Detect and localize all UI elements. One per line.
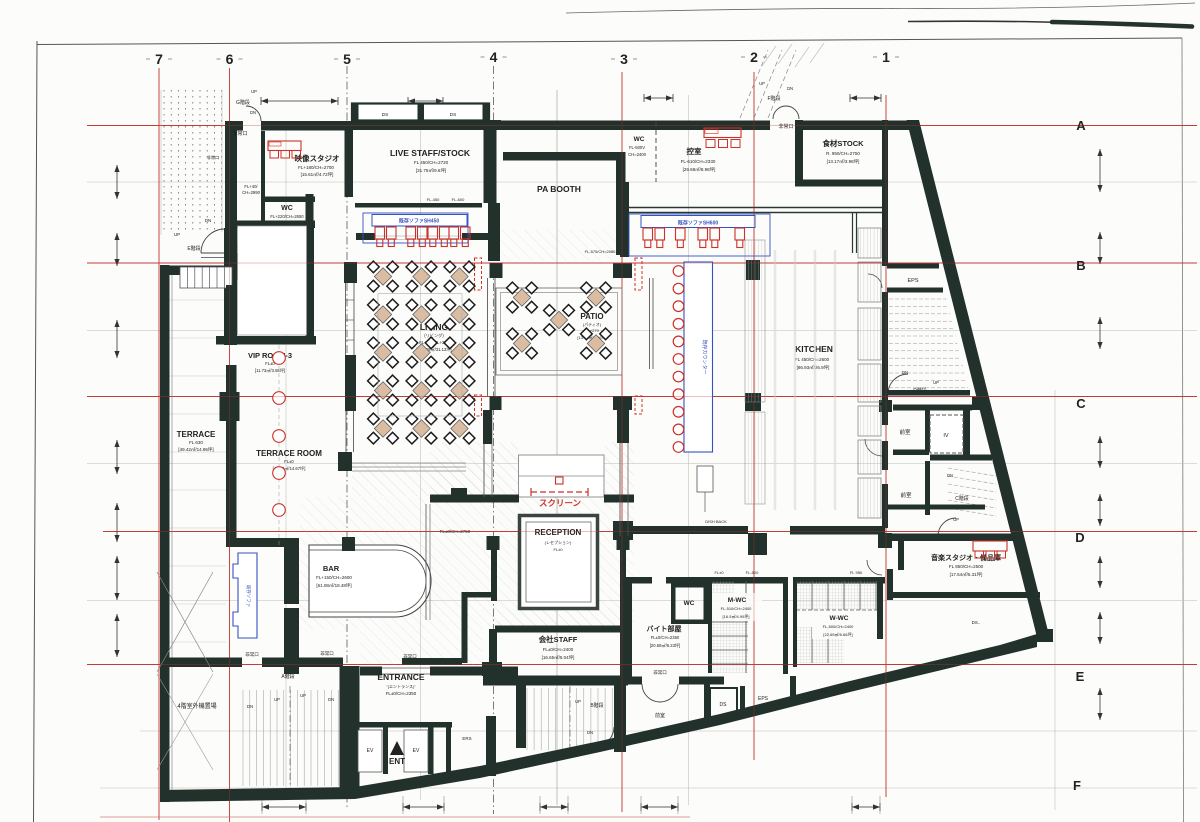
svg-text:RECEPTION: RECEPTION: [535, 528, 582, 537]
svg-text:B: B: [1076, 258, 1085, 273]
svg-text:C階段: C階段: [955, 495, 969, 502]
svg-text:[31.75㎡/9.6坪]: [31.75㎡/9.6坪]: [416, 167, 446, 174]
svg-text:PA BOOTH: PA BOOTH: [537, 184, 581, 194]
svg-text:ENT: ENT: [389, 757, 405, 766]
svg-text:D: D: [1075, 530, 1084, 545]
svg-text:既存ソファSH600: 既存ソファSH600: [678, 220, 719, 227]
svg-text:"(エントランス)": "(エントランス)": [386, 683, 416, 689]
svg-text:[11.73㎡/3.55坪]: [11.73㎡/3.55坪]: [255, 367, 285, 374]
svg-text:FL-610/CH=2330: FL-610/CH=2330: [681, 159, 716, 164]
svg-text:EPS: EPS: [758, 696, 769, 702]
svg-text:5: 5: [343, 51, 351, 67]
svg-text:映像スタジオ: 映像スタジオ: [295, 153, 340, 163]
svg-text:DN: DN: [247, 704, 253, 709]
svg-text:FL 450/CH=2600: FL 450/CH=2600: [795, 357, 830, 362]
svg-text:(パティオ): (パティオ): [583, 321, 602, 327]
svg-text:W-WC: W-WC: [830, 615, 849, 622]
svg-text:E階段: E階段: [187, 245, 200, 252]
svg-text:FL-570/CH=2080: FL-570/CH=2080: [585, 249, 617, 254]
svg-text:R. 950/CH=2750: R. 950/CH=2750: [826, 151, 860, 156]
svg-text:EPS: EPS: [907, 278, 918, 284]
svg-text:2: 2: [750, 49, 758, 65]
svg-text:(レセプション): (レセプション): [545, 539, 572, 545]
svg-text:WC: WC: [281, 205, 293, 212]
svg-text:[86.93㎡/26.9坪]: [86.93㎡/26.9坪]: [797, 364, 830, 371]
svg-text:DN: DN: [328, 697, 334, 702]
svg-text:DN: DN: [947, 473, 953, 478]
svg-text:6: 6: [226, 51, 234, 67]
svg-text:F: F: [1073, 778, 1081, 793]
svg-text:BAR: BAR: [323, 564, 340, 573]
svg-text:DISH BACK: DISH BACK: [705, 519, 727, 524]
svg-text:FL+40/: FL+40/: [244, 184, 258, 189]
svg-text:FL-500: FL-500: [746, 570, 759, 575]
svg-text:WC: WC: [684, 600, 695, 607]
svg-text:UP: UP: [300, 693, 306, 698]
svg-text:3: 3: [620, 51, 628, 67]
svg-text:CH=2990: CH=2990: [242, 190, 260, 195]
svg-text:DS: DS: [720, 702, 728, 708]
svg-text:[20.58㎡/6.23坪]: [20.58㎡/6.23坪]: [650, 642, 681, 649]
svg-text:ERS: ERS: [462, 736, 471, 741]
svg-text:FL-510/CH=2400: FL-510/CH=2400: [721, 606, 753, 611]
svg-text:TERRACE: TERRACE: [177, 430, 216, 439]
svg-text:前室: 前室: [899, 428, 911, 436]
svg-text:FL-600: FL-600: [452, 197, 465, 202]
svg-text:FL±0/CH=2350: FL±0/CH=2350: [651, 635, 680, 640]
svg-text:[22.65㎡/6.66坪]: [22.65㎡/6.66坪]: [823, 631, 852, 637]
svg-text:LIVE STAFF/STOCK: LIVE STAFF/STOCK: [390, 148, 471, 158]
svg-text:バイト部屋: バイト部屋: [647, 624, 682, 633]
svg-text:E: E: [1076, 669, 1085, 684]
svg-text:UP: UP: [251, 89, 257, 94]
svg-text:DN: DN: [787, 86, 793, 91]
svg-text:CH=2400: CH=2400: [628, 152, 646, 157]
svg-text:既存カウンター: 既存カウンター: [701, 339, 708, 374]
svg-text:[16.5㎡/4.99坪]: [16.5㎡/4.99坪]: [723, 613, 750, 619]
svg-text:FL 850/CH=2500: FL 850/CH=2500: [949, 564, 984, 569]
svg-text:非常口: 非常口: [207, 154, 220, 161]
svg-text:1: 1: [882, 49, 890, 65]
svg-text:4階室外機置場: 4階室外機置場: [177, 702, 216, 710]
svg-text:既存ソファSH450: 既存ソファSH450: [399, 218, 440, 225]
svg-text:FL+180/CH=2700: FL+180/CH=2700: [298, 165, 334, 170]
svg-text:4: 4: [490, 49, 498, 65]
svg-text:UP: UP: [933, 380, 939, 385]
svg-text:[29.68㎡/8.98坪]: [29.68㎡/8.98坪]: [683, 166, 716, 173]
svg-text:FL±0/CH=2400: FL±0/CH=2400: [543, 647, 574, 652]
svg-text:DS: DS: [382, 112, 389, 118]
svg-text:IV: IV: [943, 433, 949, 439]
svg-text:G階段: G階段: [236, 99, 250, 106]
svg-text:A階段: A階段: [281, 673, 294, 680]
svg-text:EV: EV: [413, 748, 420, 754]
svg-text:DN: DN: [587, 730, 593, 735]
svg-text:FL±0: FL±0: [714, 570, 724, 575]
svg-text:非常口: 非常口: [232, 130, 247, 137]
svg-text:FL-450: FL-450: [427, 197, 440, 202]
svg-text:非常口: 非常口: [245, 651, 259, 658]
svg-text:DN: DN: [205, 218, 212, 223]
svg-text:FL 450/CH=2720: FL 450/CH=2720: [414, 160, 449, 165]
svg-text:スクリーン: スクリーン: [539, 498, 582, 508]
svg-text:UP: UP: [174, 232, 180, 237]
svg-text:PS: PS: [821, 689, 828, 695]
svg-text:FL+150/CH=2600: FL+150/CH=2600: [316, 575, 352, 580]
svg-text:FL-500/CH=2400: FL-500/CH=2400: [823, 624, 855, 629]
svg-text:UP: UP: [575, 699, 581, 704]
svg-text:(リビング): (リビング): [424, 332, 444, 339]
svg-text:TERRACE ROOM: TERRACE ROOM: [256, 449, 322, 458]
svg-text:食材STOCK: 食材STOCK: [822, 138, 864, 148]
svg-text:非常口: 非常口: [320, 650, 334, 657]
svg-text:非常口: 非常口: [653, 669, 667, 676]
svg-text:C: C: [1076, 396, 1086, 411]
svg-text:既存ソファ: 既存ソファ: [245, 585, 252, 608]
svg-text:UP: UP: [274, 697, 280, 702]
svg-text:控室: 控室: [687, 146, 702, 156]
svg-text:前室: 前室: [655, 712, 665, 719]
svg-text:DS: DS: [450, 112, 457, 118]
svg-text:UP: UP: [759, 81, 765, 86]
svg-text:FL-500V: FL-500V: [629, 145, 645, 150]
svg-text:DN: DN: [250, 110, 256, 115]
svg-text:FL±0: FL±0: [284, 459, 294, 464]
svg-text:ENTRANCE: ENTRANCE: [377, 672, 425, 682]
svg-text:[13.17㎡/3.98坪]: [13.17㎡/3.98坪]: [827, 158, 860, 165]
svg-text:WC: WC: [634, 136, 645, 143]
svg-text:会社STAFF: 会社STAFF: [539, 634, 578, 644]
svg-text:前室: 前室: [900, 491, 912, 499]
svg-text:FL±0/CH=2350: FL±0/CH=2350: [386, 691, 417, 696]
svg-text:M-WC: M-WC: [728, 597, 747, 604]
svg-text:[17.54㎡/5.31坪]: [17.54㎡/5.31坪]: [950, 571, 983, 578]
svg-text:DS..: DS..: [972, 620, 981, 625]
svg-text:PATIO: PATIO: [580, 312, 603, 321]
svg-text:[61.08㎡/18.48坪]: [61.08㎡/18.48坪]: [316, 582, 351, 589]
svg-text:FL±0: FL±0: [553, 547, 563, 552]
svg-text:F階段: F階段: [767, 95, 780, 102]
svg-text:FL 950: FL 950: [850, 570, 863, 575]
svg-text:[15.61㎡/4.72坪]: [15.61㎡/4.72坪]: [301, 171, 334, 178]
svg-text:B階段: B階段: [590, 702, 603, 709]
svg-text:[49.42㎡/14.96坪]: [49.42㎡/14.96坪]: [178, 446, 213, 453]
svg-text:FL 630: FL 630: [189, 440, 203, 445]
svg-text:EV: EV: [367, 748, 374, 754]
svg-text:7: 7: [155, 51, 163, 67]
svg-text:[16.65㎡/5.04坪]: [16.65㎡/5.04坪]: [542, 654, 575, 661]
svg-text:FL+220/CH=2650: FL+220/CH=2650: [270, 214, 304, 219]
svg-text:非常口: 非常口: [778, 123, 793, 130]
